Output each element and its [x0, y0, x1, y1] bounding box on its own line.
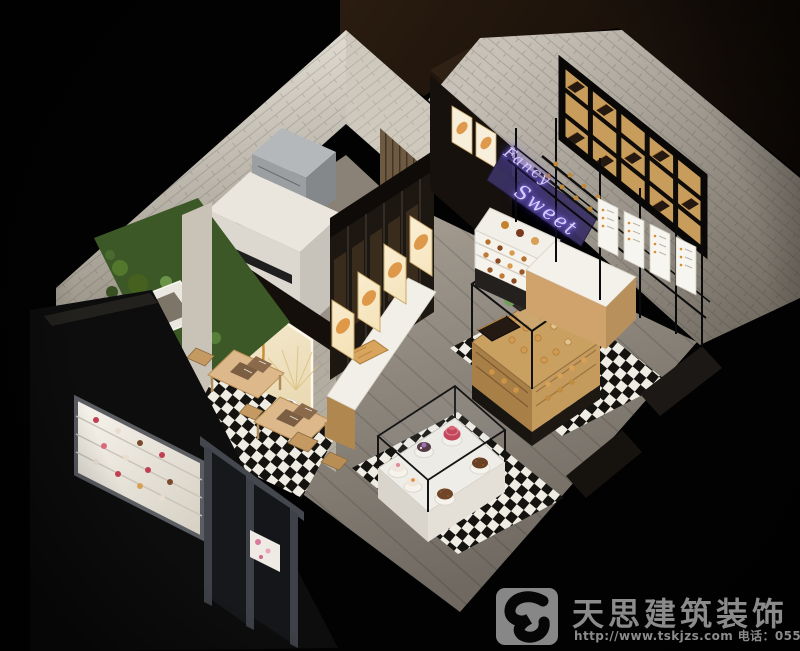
render-canvas	[0, 0, 800, 651]
bakery-shop-3d-render: Fancy Sweet 天思建筑装饰 http://www.tskjzs.com…	[0, 0, 800, 651]
watermark-contact-info: http://www.tskjzs.com 电话：0551-65568226	[574, 627, 800, 644]
tiansi-logo-icon	[496, 588, 558, 645]
vignette	[0, 0, 800, 651]
